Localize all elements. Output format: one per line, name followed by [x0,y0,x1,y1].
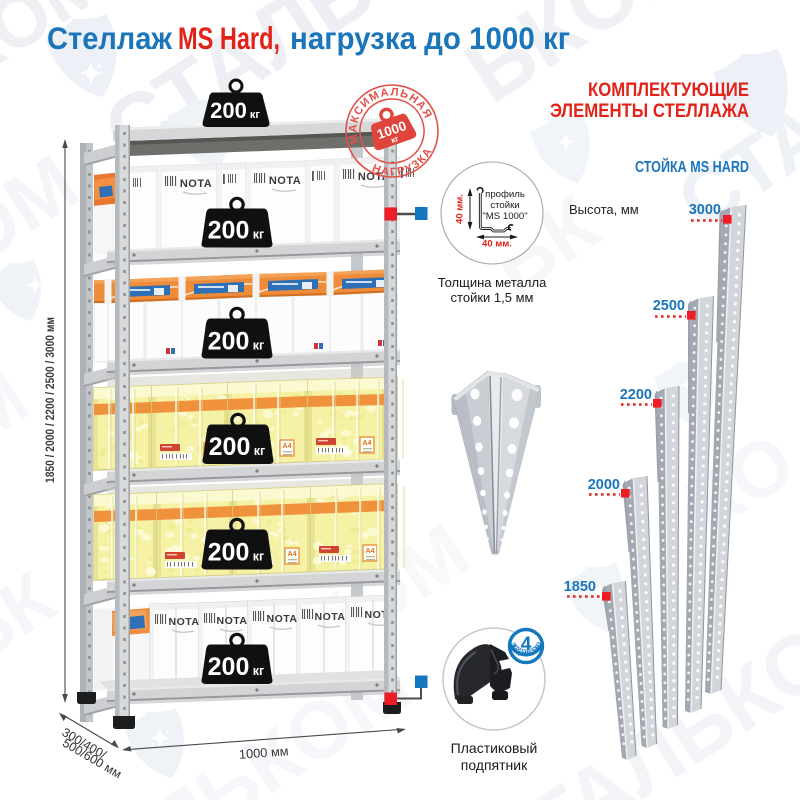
svg-text:кг: кг [253,228,264,242]
svg-text:200: 200 [208,653,250,681]
svg-text:Стеллаж: Стеллаж [47,20,173,56]
svg-text:200: 200 [208,539,250,567]
svg-text:A4: A4 [288,551,297,558]
svg-text:1850: 1850 [564,579,596,595]
svg-text:1850 / 2000 / 2200 / 2500 / 30: 1850 / 2000 / 2200 / 2500 / 3000 мм [43,317,57,483]
svg-text:ЬК: ЬК [0,555,70,682]
svg-text:ЭЛЕМЕНТЫ СТЕЛЛАЖА: ЭЛЕМЕНТЫ СТЕЛЛАЖА [550,101,749,122]
svg-text:стойки: стойки [490,200,519,211]
svg-text:2200: 2200 [620,387,652,403]
svg-text:Толщина металла: Толщина металла [438,275,547,290]
svg-text:подпятник: подпятник [461,757,528,773]
svg-text:40 мм.: 40 мм. [482,239,512,250]
svg-text:СТОЙКА MS HARD: СТОЙКА MS HARD [635,157,749,176]
svg-text:ШТУКИ: ШТУКИ [518,652,534,657]
svg-text:NOTA: NOTA [315,611,346,623]
svg-text:NOTA: NOTA [267,613,298,625]
svg-text:NOTA: NOTA [269,175,301,187]
svg-text:A4: A4 [283,443,292,450]
svg-text:М: М [0,358,42,458]
svg-text:200: 200 [209,433,251,461]
svg-text:NOTA: NOTA [217,615,248,627]
svg-text:NOTA: NOTA [169,616,200,628]
svg-text:кг: кг [253,664,264,678]
svg-text:200: 200 [208,217,250,245]
svg-text:40 мм.: 40 мм. [455,194,466,224]
svg-text:MS Hard,: MS Hard, [178,20,280,56]
svg-text:200: 200 [210,98,247,123]
svg-text:"MS 1000": "MS 1000" [482,211,527,222]
svg-text:2500: 2500 [653,298,685,314]
svg-text:КОМПЛЕКТУЮЩИЕ: КОМПЛЕКТУЮЩИЕ [588,80,749,101]
svg-text:кг: кг [253,550,264,564]
svg-text:Высота, мм: Высота, мм [569,202,639,217]
svg-text:стойки 1,5 мм: стойки 1,5 мм [451,290,534,305]
svg-text:профиль: профиль [485,189,525,200]
svg-text:2000: 2000 [588,477,620,493]
svg-text:кг: кг [254,444,265,458]
svg-text:Пластиковый: Пластиковый [451,740,538,756]
svg-text:нагрузка до 1000 кг: нагрузка до 1000 кг [290,20,570,56]
svg-text:200: 200 [208,328,250,356]
svg-text:кг: кг [253,339,264,353]
svg-text:NOTA: NOTA [180,178,212,190]
svg-text:3000: 3000 [689,202,721,218]
svg-text:A4: A4 [366,548,375,555]
svg-text:кг: кг [250,109,261,121]
svg-text:A4: A4 [363,440,372,447]
